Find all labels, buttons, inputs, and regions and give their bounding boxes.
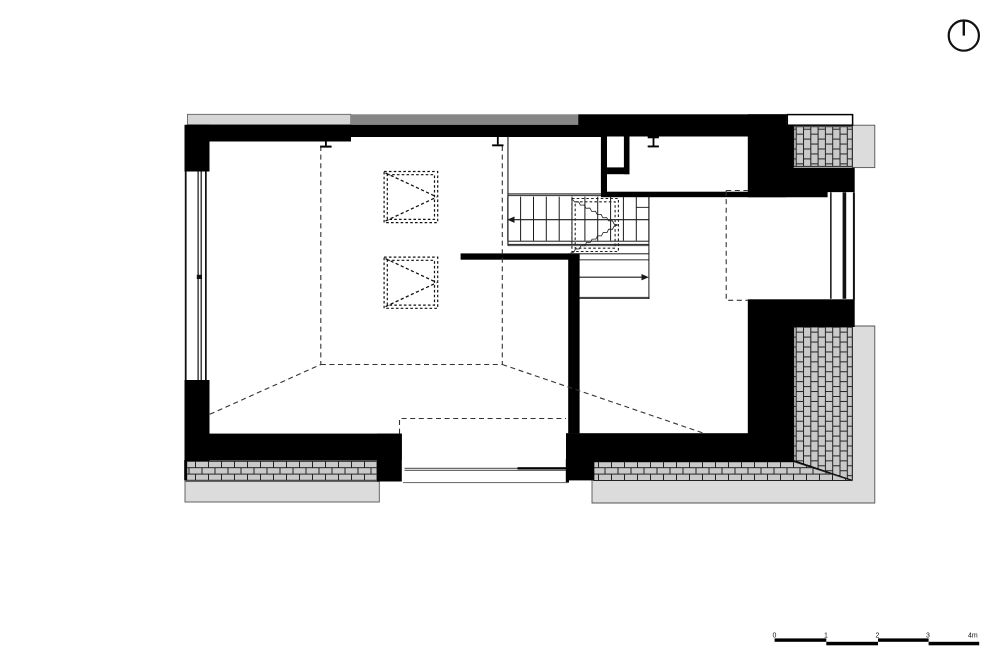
svg-text:2: 2 <box>876 632 880 639</box>
svg-text:3: 3 <box>926 632 930 639</box>
svg-text:1: 1 <box>824 632 828 639</box>
svg-text:4m: 4m <box>968 632 978 639</box>
svg-text:0: 0 <box>773 632 777 639</box>
